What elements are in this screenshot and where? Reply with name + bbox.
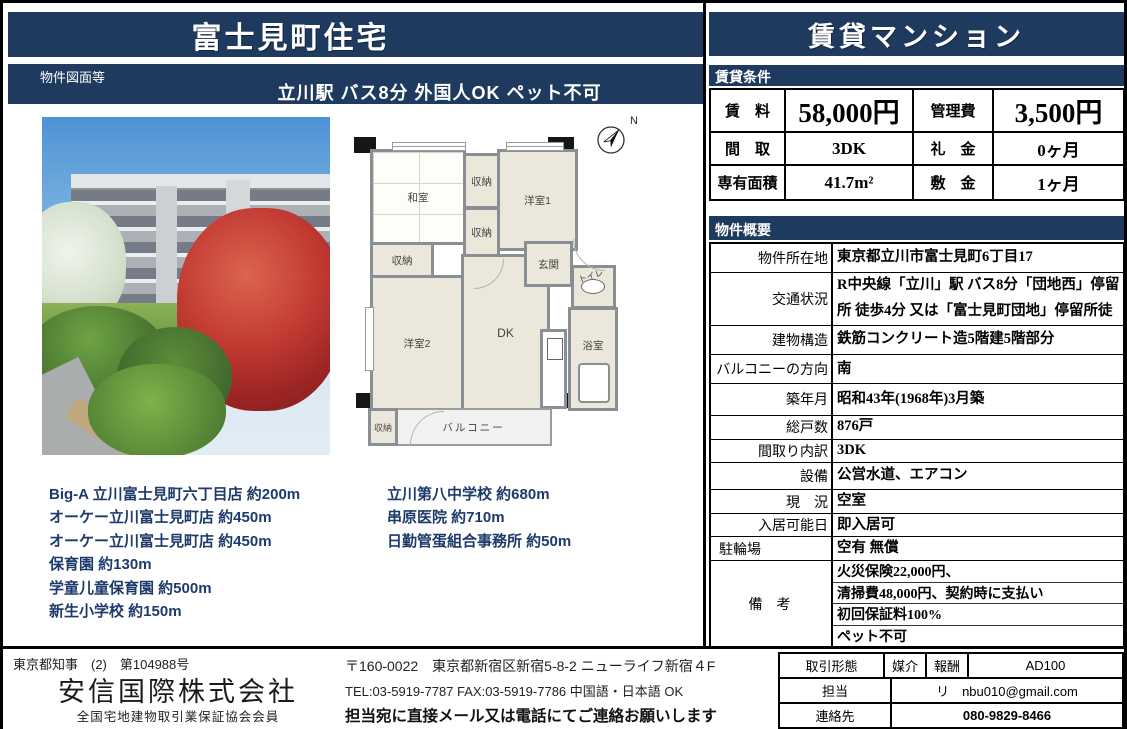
rent-conditions-table: 賃 料 58,000円 管理費 3,500円 間 取 3DK 礼 金 0ヶ月 専… <box>709 88 1125 201</box>
row-label: 築年月 <box>711 384 833 415</box>
overview-section-header: 物件概要 <box>709 216 1124 240</box>
building-pillar <box>156 186 177 313</box>
floor-plan: 和室 洋室1 収納 収納 収納 DK 洋室2 玄関 トイレ 浴室 バルコニー 収… <box>348 115 678 467</box>
toilet-fixture-icon <box>581 279 605 294</box>
table-row: 間取り内訳 3DK <box>711 440 1123 463</box>
facility-item: オーケー立川富士見町店 約450m <box>49 506 300 529</box>
room-closet: 収納 <box>370 242 434 278</box>
property-title-banner: 富士見町住宅 <box>8 12 703 57</box>
row-value: 南 <box>833 355 1123 383</box>
contact-table: 取引形態 媒介 報酬 AD100 担当 リ nbu010@gmail.com 連… <box>778 652 1124 729</box>
facility-item: 日勤管蛋組合事務所 約50m <box>387 530 571 553</box>
row-value: 東京都立川市富士見町6丁目17 <box>833 244 1123 272</box>
property-flyer-page: 富士見町住宅 物件図面等 立川駅 バス8分 外国人OK ペット不可 和室 洋室1 <box>0 0 1127 729</box>
table-row: 建物構造 鉄筋コンクリート造5階建5階部分 <box>711 326 1123 356</box>
rent-value: 58,000円 <box>786 90 914 133</box>
row-label: 物件所在地 <box>711 244 833 272</box>
deposit-label: 敷 金 <box>914 166 994 199</box>
footer: 東京都知事 (2) 第104988号 安信国際株式会社 全国宅地建物取引業保証協… <box>3 646 1124 729</box>
row-value: 即入居可 <box>833 514 1123 536</box>
fee-label: 報酬 <box>927 654 969 677</box>
window-marking <box>392 142 466 151</box>
property-title: 富士見町住宅 <box>192 13 390 57</box>
staff-row: 担当 リ nbu010@gmail.com <box>780 679 1122 704</box>
table-row: 総戸数 876戸 <box>711 416 1123 440</box>
remarks-line: 初回保証料100% <box>833 604 1123 625</box>
room-closet: 収納 <box>463 153 500 209</box>
room-washitsu: 和室 <box>370 149 466 245</box>
room-closet: 収納 <box>463 207 500 257</box>
room-label: 収納 <box>392 253 413 268</box>
room-label: 玄関 <box>538 257 559 272</box>
deposit-value: 1ヶ月 <box>994 166 1123 199</box>
area-value: 41.7m² <box>786 166 914 199</box>
north-compass: N <box>594 123 628 162</box>
building-photo <box>42 117 330 455</box>
room-label: バルコニー <box>442 420 504 435</box>
room-label: 収納 <box>471 225 492 240</box>
access-subtitle: 立川駅 バス8分 外国人OK ペット不可 <box>8 79 703 105</box>
rent-label: 賃 料 <box>711 90 786 133</box>
property-overview-table: 物件所在地 東京都立川市富士見町6丁目17 交通状況 R中央線「立川」駅 バス8… <box>709 242 1125 648</box>
window-marking <box>506 142 564 151</box>
row-value: 公営水道、エアコン <box>833 463 1123 490</box>
listing-type-banner: 賃貸マンション <box>709 12 1124 56</box>
mgmt-fee-value: 3,500円 <box>994 90 1123 133</box>
row-label: 交通状況 <box>711 273 833 325</box>
room-western2: 洋室2 <box>370 275 464 411</box>
deal-type-label: 取引形態 <box>780 654 885 677</box>
company-phone-line: TEL:03-5919-7787 FAX:03-5919-7786 中国語・日本… <box>345 681 683 700</box>
remarks-line: 清掃費48,000円、契約時に支払い <box>833 583 1123 604</box>
sink-fixture-icon <box>547 338 563 360</box>
row-label: 入居可能日 <box>711 514 833 536</box>
room-label: 洋室1 <box>524 193 551 208</box>
deal-type-value: 媒介 <box>885 654 927 677</box>
table-row: 設備 公営水道、エアコン <box>711 463 1123 491</box>
row-label: 総戸数 <box>711 416 833 439</box>
row-label: 駐輪場 <box>711 537 833 560</box>
room-label: 収納 <box>374 421 392 434</box>
table-row: 交通状況 R中央線「立川」駅 バス8分「団地西」停留所 徒歩4分 又は「富士見町… <box>711 273 1123 326</box>
fee-value: AD100 <box>969 654 1122 677</box>
north-arrow-icon <box>594 123 628 157</box>
room-label: 収納 <box>471 174 492 189</box>
contact-phone: 080-9829-8466 <box>892 704 1122 727</box>
layout-label: 間 取 <box>711 133 786 166</box>
green-bush <box>88 364 226 455</box>
remarks-value: 火災保険22,000円、 清掃費48,000円、契約時に支払い 初回保証料100… <box>833 561 1123 646</box>
table-row: 駐輪場 空有 無償 <box>711 537 1123 561</box>
company-name: 安信国際株式会社 <box>18 670 338 709</box>
rent-section-header: 賃貸条件 <box>709 65 1124 86</box>
sub-banner: 物件図面等 立川駅 バス8分 外国人OK ペット不可 <box>8 64 703 104</box>
room-closet: 収納 <box>368 408 398 446</box>
row-value: 空室 <box>833 490 1123 513</box>
row-value: 876戸 <box>833 416 1123 439</box>
remarks-line: ペット不可 <box>833 626 1123 646</box>
contact-label: 連絡先 <box>780 704 892 727</box>
staff-label: 担当 <box>780 679 892 702</box>
row-label: 設備 <box>711 463 833 490</box>
kitchen-sink-unit <box>540 329 567 409</box>
facility-item: Big-A 立川富士見町六丁目店 約200m <box>49 483 300 506</box>
deal-type-row: 取引形態 媒介 報酬 AD100 <box>780 654 1122 679</box>
remarks-line: 火災保険22,000円、 <box>833 561 1123 582</box>
contact-row: 連絡先 080-9829-8466 <box>780 704 1122 727</box>
bathtub-icon <box>578 363 610 403</box>
layout-value: 3DK <box>786 133 914 166</box>
facility-item: 串原医院 約710m <box>387 506 571 529</box>
row-value: 鉄筋コンクリート造5階建5階部分 <box>833 326 1123 355</box>
row-value: R中央線「立川」駅 バス8分「団地西」停留所 徒歩4分 又は「富士見町団地」停留… <box>833 273 1123 325</box>
building-roof <box>71 174 330 189</box>
company-address: 〒160-0022 東京都新宿区新宿5-8-2 ニューライフ新宿４F <box>345 656 715 676</box>
room-western1: 洋室1 <box>497 149 578 251</box>
row-value: 昭和43年(1968年)3月築 <box>833 384 1123 415</box>
north-label: N <box>630 115 638 127</box>
row-value: 空有 無償 <box>833 537 1123 560</box>
table-row: 築年月 昭和43年(1968年)3月築 <box>711 384 1123 416</box>
room-label: DK <box>497 326 514 340</box>
facility-item: 新生小学校 約150m <box>49 600 300 623</box>
row-label: 建物構造 <box>711 326 833 355</box>
contact-notice: 担当宛に直接メール又は電話にてご連絡お願いします <box>345 704 717 726</box>
table-row: バルコニーの方向 南 <box>711 355 1123 384</box>
room-label: 浴室 <box>583 338 604 353</box>
remarks-row: 備 考 火災保険22,000円、 清掃費48,000円、契約時に支払い 初回保証… <box>711 561 1123 646</box>
staff-email: リ nbu010@gmail.com <box>892 679 1122 702</box>
key-money-label: 礼 金 <box>914 133 994 166</box>
facility-item: 学童儿童保育園 約500m <box>49 577 300 600</box>
row-value: 3DK <box>833 440 1123 462</box>
facility-item: 立川第八中学校 約680m <box>387 483 571 506</box>
facility-item: オーケー立川富士見町店 約450m <box>49 530 300 553</box>
room-label: 洋室2 <box>404 336 431 351</box>
row-label: バルコニーの方向 <box>711 355 833 383</box>
room-entrance: 玄関 <box>524 241 573 287</box>
window-marking <box>365 307 374 371</box>
area-label: 専有面積 <box>711 166 786 199</box>
key-money-value: 0ヶ月 <box>994 133 1123 166</box>
facility-item: 保育園 約130m <box>49 553 300 576</box>
row-label: 現 況 <box>711 490 833 513</box>
panel-divider <box>703 3 706 646</box>
nearby-facilities-left: Big-A 立川富士見町六丁目店 約200m オーケー立川富士見町店 約450m… <box>49 483 300 623</box>
nearby-facilities-right: 立川第八中学校 約680m 串原医院 約710m 日勤管蛋組合事務所 約50m <box>387 483 571 553</box>
row-label: 間取り内訳 <box>711 440 833 462</box>
listing-type: 賃貸マンション <box>808 15 1025 54</box>
table-row: 物件所在地 東京都立川市富士見町6丁目17 <box>711 244 1123 273</box>
association-membership: 全国宅地建物取引業保証協会会員 <box>18 706 338 725</box>
table-row: 入居可能日 即入居可 <box>711 514 1123 537</box>
table-row: 現 況 空室 <box>711 490 1123 514</box>
mgmt-fee-label: 管理費 <box>914 90 994 133</box>
remarks-label: 備 考 <box>711 561 833 646</box>
room-label: 和室 <box>408 190 429 205</box>
